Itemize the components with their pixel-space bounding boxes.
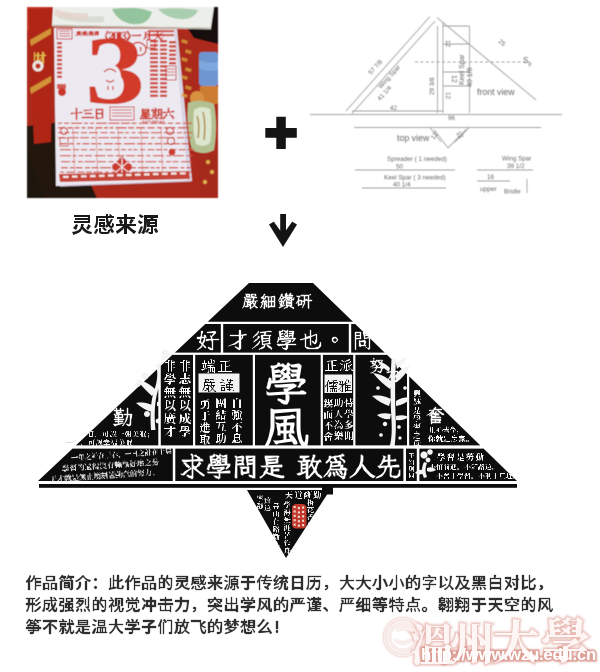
svg-text:12: 12: [454, 130, 464, 140]
svg-text:http://www.wzu.edu.cn: http://www.wzu.edu.cn: [421, 645, 596, 664]
svg-text:40 1/4: 40 1/4: [393, 182, 411, 189]
svg-text:front view: front view: [477, 87, 515, 97]
svg-text:Keel Spar ( 3 needed): Keel Spar ( 3 needed): [384, 175, 446, 182]
svg-text:Wing Spar: Wing Spar: [502, 156, 531, 163]
svg-text:Keel Spar: Keel Spar: [459, 54, 466, 85]
svg-text:12: 12: [444, 92, 451, 100]
svg-text:57 7/8: 57 7/8: [367, 58, 384, 76]
svg-text:39 1/2: 39 1/2: [507, 163, 525, 170]
svg-text:upper: upper: [480, 186, 497, 193]
svg-text:25: 25: [497, 38, 507, 48]
svg-text:12: 12: [444, 40, 451, 48]
svg-text:40 1/8: 40 1/8: [467, 67, 474, 87]
svg-text:50: 50: [396, 164, 404, 171]
svg-text:Bridle: Bridle: [504, 189, 521, 196]
svg-text:Spreader ( 1 needed): Spreader ( 1 needed): [387, 156, 447, 163]
svg-text:12: 12: [430, 131, 440, 141]
svg-text:12: 12: [450, 75, 457, 83]
svg-text:96: 96: [448, 115, 456, 122]
svg-text:42: 42: [390, 105, 398, 112]
svg-text:p: p: [529, 62, 532, 68]
svg-text:16: 16: [487, 174, 495, 181]
svg-text:29 3/8: 29 3/8: [429, 77, 436, 95]
svg-text:top view: top view: [397, 133, 430, 143]
